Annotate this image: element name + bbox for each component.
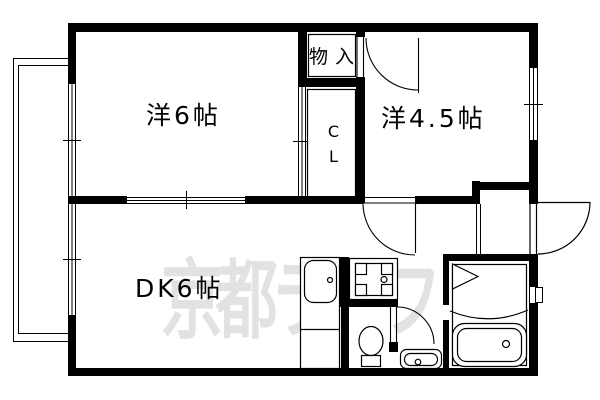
hall-door bbox=[363, 198, 416, 256]
window-dk-balcony bbox=[63, 204, 81, 315]
washbasin bbox=[401, 350, 442, 369]
sliding-door-west6-dk bbox=[127, 191, 245, 209]
window-west45 bbox=[524, 68, 543, 140]
balcony bbox=[14, 59, 69, 342]
room-label-dk: DK6帖 bbox=[135, 269, 224, 305]
window-bathroom bbox=[530, 287, 543, 303]
storage-door bbox=[357, 37, 419, 93]
floor-plan-drawing bbox=[0, 0, 600, 400]
room-label-storage: 物入 bbox=[309, 42, 361, 69]
toilet-door bbox=[391, 307, 435, 344]
floor-plan: 京都ライフ bbox=[0, 0, 600, 400]
bathtub bbox=[453, 324, 527, 367]
kitchen-sink bbox=[301, 258, 340, 369]
genkan-floor bbox=[480, 190, 529, 254]
room-label-western6: 洋6帖 bbox=[146, 96, 221, 132]
entrance-door bbox=[530, 202, 590, 254]
window-west6-balcony bbox=[63, 84, 81, 196]
room-label-western45: 洋4.5帖 bbox=[381, 99, 486, 135]
toilet bbox=[359, 327, 383, 367]
room-label-closet: CL bbox=[324, 122, 343, 172]
gas-stove bbox=[350, 259, 398, 300]
genkan-step bbox=[477, 204, 481, 254]
